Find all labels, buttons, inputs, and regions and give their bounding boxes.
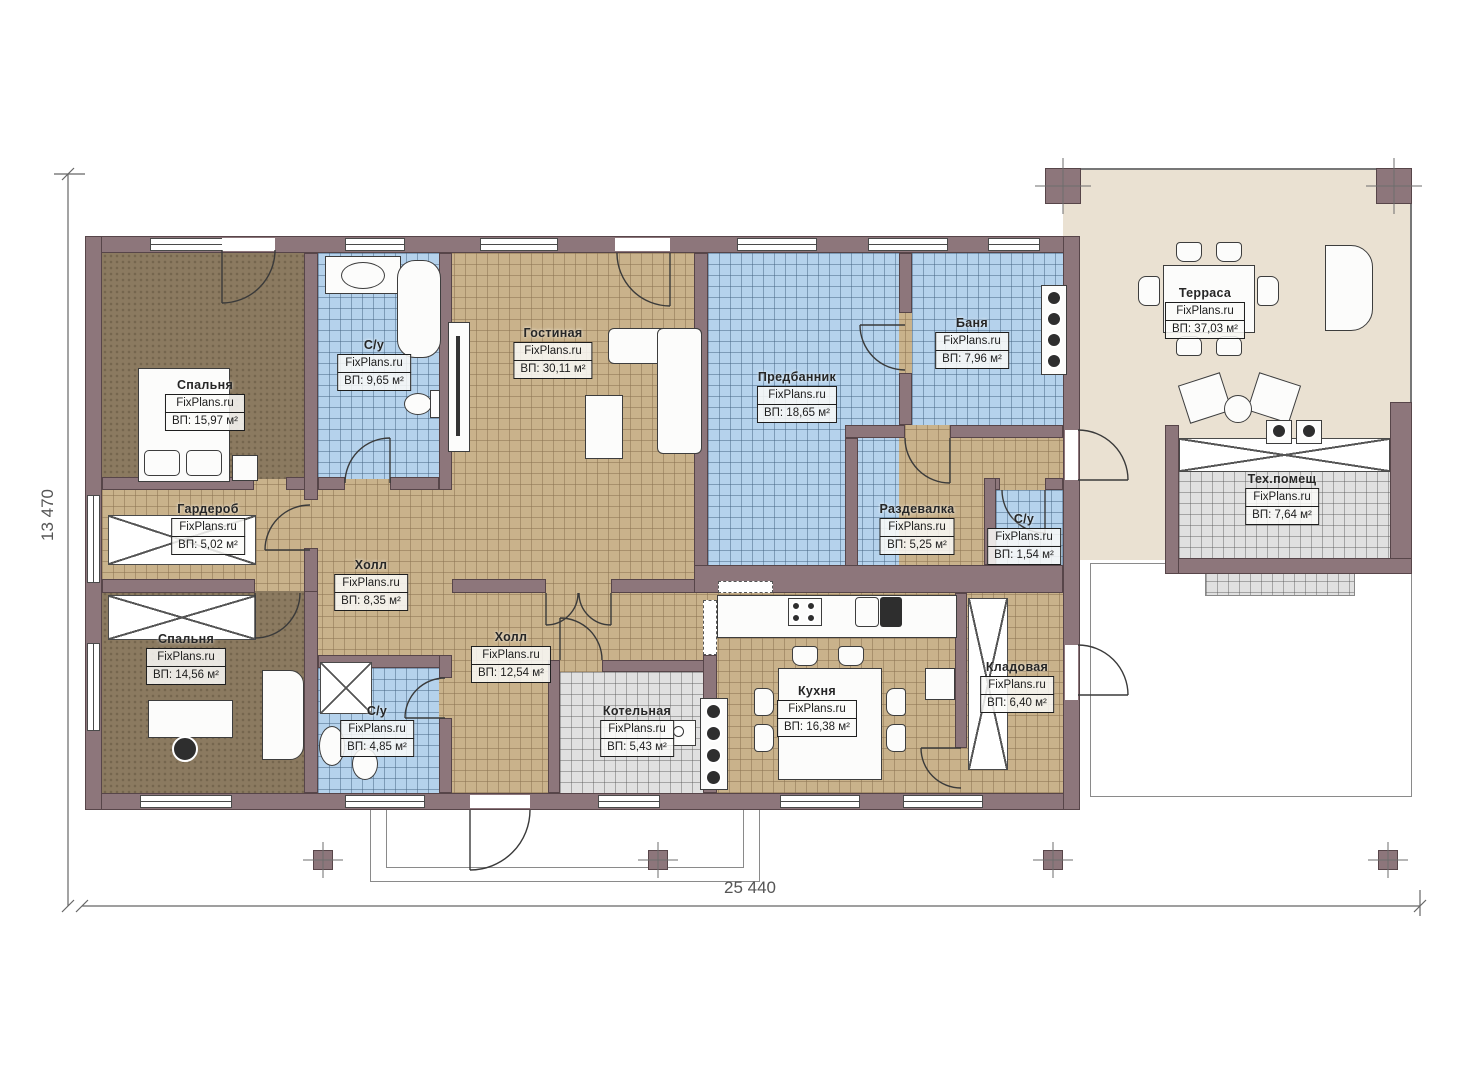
dimension-height: 13 470 [38, 475, 58, 555]
chair [886, 724, 906, 752]
brand-watermark: FixPlans.ru [146, 648, 226, 667]
room-name: Кладовая [980, 660, 1054, 674]
wall-segment [439, 718, 452, 793]
boiler-gauge [673, 726, 684, 737]
wall-segment [845, 425, 905, 438]
room-name: С/у [340, 704, 414, 718]
door-opening [615, 238, 670, 251]
room-label-bedroom2: Спальня FixPlans.ru ВП: 14,56 м² [146, 632, 226, 685]
room-name: Кухня [777, 684, 857, 698]
room-name: С/у [987, 512, 1061, 526]
wall-segment [304, 253, 318, 500]
room-area: ВП: 16,38 м² [777, 718, 857, 737]
chair [1138, 276, 1160, 306]
boiler-pipe [705, 703, 722, 720]
toilet-tank [430, 390, 440, 418]
brand-watermark: FixPlans.ru [757, 386, 837, 405]
kitchen-counter [717, 595, 957, 638]
chair [754, 724, 774, 752]
wall-segment [390, 477, 439, 490]
drainer [880, 597, 902, 627]
heater-coil [1046, 332, 1062, 348]
room-name: Предбанник [757, 370, 837, 384]
room-label-dressing: Раздевалка FixPlans.ru ВП: 5,25 м² [880, 502, 955, 555]
door-opening [1065, 645, 1078, 700]
brand-watermark: FixPlans.ru [980, 676, 1054, 695]
room-label-bathroom2: С/у FixPlans.ru ВП: 1,54 м² [987, 512, 1061, 565]
wall-segment [439, 655, 452, 678]
terrace-post-left [1045, 168, 1081, 204]
boiler-pipe [705, 769, 722, 786]
brand-watermark: FixPlans.ru [1245, 488, 1319, 507]
desk-chair [172, 736, 198, 762]
chair [1216, 242, 1242, 262]
brand-watermark: FixPlans.ru [880, 518, 955, 537]
wall-segment [899, 253, 912, 313]
room-area: ВП: 5,25 м² [880, 536, 955, 555]
window [480, 238, 558, 251]
chair [1176, 242, 1202, 262]
room-label-bathroom1: С/у FixPlans.ru ВП: 9,65 м² [337, 338, 411, 391]
washer-drum [1301, 423, 1317, 439]
brand-watermark: FixPlans.ru [171, 518, 245, 537]
burner [791, 601, 801, 611]
wall-segment [1045, 478, 1063, 490]
nightstand [232, 455, 258, 481]
heater-coil [1046, 290, 1062, 306]
room-label-hall1: Холл FixPlans.ru ВП: 8,35 м² [334, 558, 408, 611]
room-area: ВП: 6,40 м² [980, 694, 1054, 713]
window [345, 795, 425, 808]
room-area: ВП: 8,35 м² [334, 592, 408, 611]
room-area: ВП: 14,56 м² [146, 666, 226, 685]
room-label-hall2: Холл FixPlans.ru ВП: 12,54 м² [471, 630, 551, 683]
brand-watermark: FixPlans.ru [777, 700, 857, 719]
pillow [144, 450, 180, 476]
window [737, 238, 817, 251]
desk [148, 700, 233, 738]
brand-watermark: FixPlans.ru [165, 394, 245, 413]
wall-segment [899, 373, 912, 425]
sofa-chaise [657, 328, 702, 454]
room-area: ВП: 15,97 м² [165, 412, 245, 431]
window [150, 238, 230, 251]
column [1378, 850, 1398, 870]
tv [456, 336, 460, 436]
room-area: ВП: 4,85 м² [340, 738, 414, 757]
loveseat [262, 670, 304, 760]
room-label-bedroom1: Спальня FixPlans.ru ВП: 15,97 м² [165, 378, 245, 431]
wall-segment [845, 438, 858, 579]
brand-watermark: FixPlans.ru [334, 574, 408, 593]
washer-drum [1271, 423, 1287, 439]
room-name: Раздевалка [880, 502, 955, 516]
wall-segment [102, 579, 255, 593]
chair [1176, 336, 1202, 356]
room-area: ВП: 7,64 м² [1245, 506, 1319, 525]
column [1043, 850, 1063, 870]
door-opening [470, 795, 530, 808]
chair [1257, 276, 1279, 306]
brand-watermark: FixPlans.ru [340, 720, 414, 739]
kitchen-pass [718, 581, 773, 593]
heater-coil [1046, 353, 1062, 369]
toilet [404, 393, 432, 415]
patio-outline [1090, 563, 1412, 797]
terrace-sofa [1325, 245, 1373, 331]
wall-segment [304, 591, 318, 793]
chair [792, 646, 818, 666]
side-table [925, 668, 955, 700]
room-area: ВП: 5,43 м² [600, 738, 674, 757]
column [313, 850, 333, 870]
kitchen-opening [703, 600, 717, 655]
window [988, 238, 1040, 251]
room-label-vestibule: Предбанник FixPlans.ru ВП: 18,65 м² [757, 370, 837, 423]
coffee-table [585, 395, 623, 459]
terrace-post-right [1376, 168, 1412, 204]
wall-segment [318, 477, 345, 490]
boiler-pipe [705, 747, 722, 764]
wall-segment [452, 579, 546, 593]
room-area: ВП: 7,96 м² [935, 350, 1009, 369]
window [345, 238, 405, 251]
floor-plan: 13 470 25 440 Спальня FixPlans.ru ВП: 15… [0, 0, 1473, 1080]
window [868, 238, 948, 251]
room-label-sauna: Баня FixPlans.ru ВП: 7,96 м² [935, 316, 1009, 369]
chair [754, 688, 774, 716]
burner [791, 613, 801, 623]
brand-watermark: FixPlans.ru [337, 354, 411, 373]
burner [806, 601, 816, 611]
room-label-bathroom3: С/у FixPlans.ru ВП: 4,85 м² [340, 704, 414, 757]
window [598, 795, 660, 808]
wall-segment [304, 548, 318, 593]
boiler-pipe [705, 725, 722, 742]
room-label-pantry: Кладовая FixPlans.ru ВП: 6,40 м² [980, 660, 1054, 713]
round-table [1224, 395, 1252, 423]
door-opening [222, 238, 275, 251]
window [87, 643, 100, 731]
room-area: ВП: 5,02 м² [171, 536, 245, 555]
brand-watermark: FixPlans.ru [513, 342, 592, 361]
room-label-kitchen: Кухня FixPlans.ru ВП: 16,38 м² [777, 684, 857, 737]
sink-basin [341, 262, 385, 289]
kitchen-sink [855, 597, 879, 627]
window [140, 795, 232, 808]
tech-wall-right [1390, 402, 1412, 574]
heater-coil [1046, 311, 1062, 327]
room-name: Спальня [146, 632, 226, 646]
chair [1216, 336, 1242, 356]
room-name: Холл [334, 558, 408, 572]
chair [838, 646, 864, 666]
dimension-width: 25 440 [700, 878, 800, 898]
room-name: Спальня [165, 378, 245, 392]
brand-watermark: FixPlans.ru [471, 646, 551, 665]
room-area: ВП: 1,54 м² [987, 546, 1061, 565]
room-area: ВП: 12,54 м² [471, 664, 551, 683]
tech-wall-left [1165, 425, 1179, 574]
pillow [186, 450, 222, 476]
brand-watermark: FixPlans.ru [935, 332, 1009, 351]
room-label-living: Гостиная FixPlans.ru ВП: 30,11 м² [513, 326, 592, 379]
room-label-terrace: Терраса FixPlans.ru ВП: 37,03 м² [1165, 286, 1245, 339]
brand-watermark: FixPlans.ru [987, 528, 1061, 547]
column [648, 850, 668, 870]
room-area: ВП: 30,11 м² [513, 360, 592, 379]
room-name: Холл [471, 630, 551, 644]
room-name: Баня [935, 316, 1009, 330]
window [780, 795, 860, 808]
door-opening [1065, 430, 1078, 480]
tech-wall-bottom [1165, 558, 1412, 574]
room-label-wardrobe: Гардероб FixPlans.ru ВП: 5,02 м² [171, 502, 245, 555]
room-area: ВП: 9,65 м² [337, 372, 411, 391]
window [87, 495, 100, 583]
room-label-tech: Тех.помещ FixPlans.ru ВП: 7,64 м² [1245, 472, 1319, 525]
room-name: Тех.помещ [1245, 472, 1319, 486]
wall-segment [602, 660, 715, 672]
room-name: С/у [337, 338, 411, 352]
room-label-boiler: Котельная FixPlans.ru ВП: 5,43 м² [600, 704, 674, 757]
wall-segment [950, 425, 1063, 438]
brand-watermark: FixPlans.ru [600, 720, 674, 739]
room-area: ВП: 18,65 м² [757, 404, 837, 423]
window [903, 795, 983, 808]
brand-watermark: FixPlans.ru [1165, 302, 1245, 321]
burner [806, 613, 816, 623]
room-name: Терраса [1165, 286, 1245, 300]
room-name: Гардероб [171, 502, 245, 516]
porch-outline-inner [386, 808, 744, 868]
chair [886, 688, 906, 716]
room-area: ВП: 37,03 м² [1165, 320, 1245, 339]
room-name: Гостиная [513, 326, 592, 340]
room-name: Котельная [600, 704, 674, 718]
